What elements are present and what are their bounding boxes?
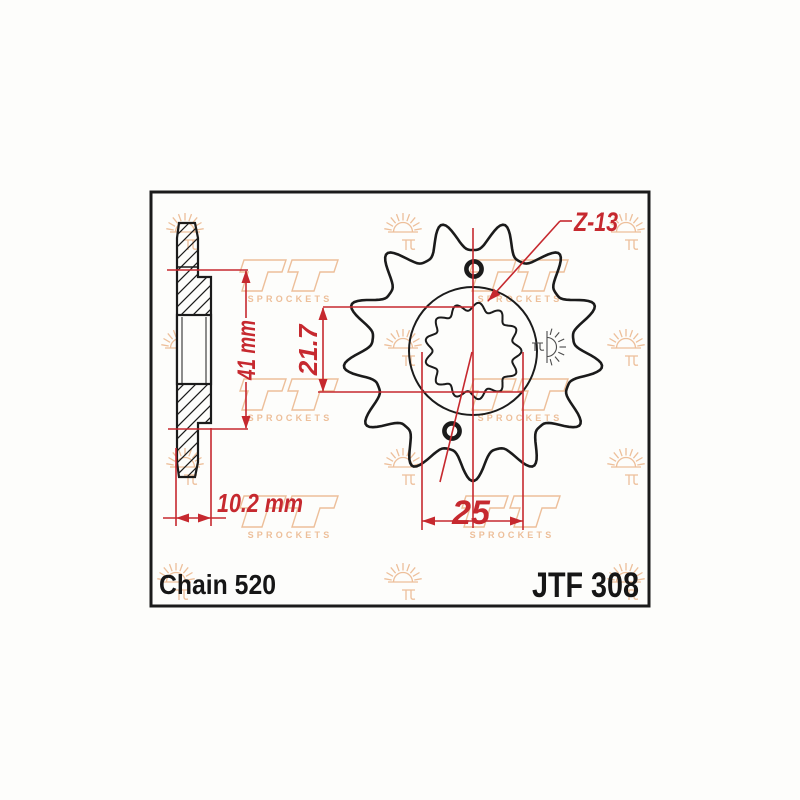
watermark-brand-text: SPROCKETS <box>478 413 563 423</box>
chain-size-label: Chain 520 <box>159 569 276 600</box>
watermark-brand-text: SPROCKETS <box>248 413 333 423</box>
teeth-count-label: Z-13 <box>573 207 618 237</box>
watermark-brand-text: SPROCKETS <box>248 294 333 304</box>
jt-sprockets-watermark: SPROCKETS <box>470 379 568 423</box>
part-number-label: JTF 308 <box>532 566 639 605</box>
sun-watermark-icon <box>607 329 644 366</box>
hub-width-dimension-label: 10.2 mm <box>217 488 303 518</box>
dimension-arrow <box>319 379 328 392</box>
watermark-brand-text: SPROCKETS <box>248 530 333 540</box>
sun-watermark-icon <box>384 213 421 250</box>
watermark-layer: SPROCKETSSPROCKETSSPROCKETSSPROCKETSSPRO… <box>157 213 644 600</box>
sprocket-technical-drawing: SPROCKETSSPROCKETSSPROCKETSSPROCKETSSPRO… <box>0 0 800 800</box>
jt-sprockets-watermark: SPROCKETS <box>240 260 338 304</box>
drawing-canvas: SPROCKETSSPROCKETSSPROCKETSSPROCKETSSPRO… <box>0 0 800 800</box>
height-dimension-label: 41 mm <box>233 320 261 381</box>
sun-watermark-icon <box>384 329 421 366</box>
sun-watermark-icon <box>607 448 644 485</box>
bore-width-dimension-label: 25 <box>451 494 491 532</box>
sun-watermark-icon <box>384 563 421 600</box>
dimension-arrow <box>176 514 189 523</box>
bore-height-dimension-label: 21.7 <box>293 323 323 376</box>
dimension-arrow <box>198 514 211 523</box>
dimension-arrow <box>319 307 328 320</box>
dimension-arrow <box>422 517 435 526</box>
bolt-hole-top <box>466 261 481 276</box>
